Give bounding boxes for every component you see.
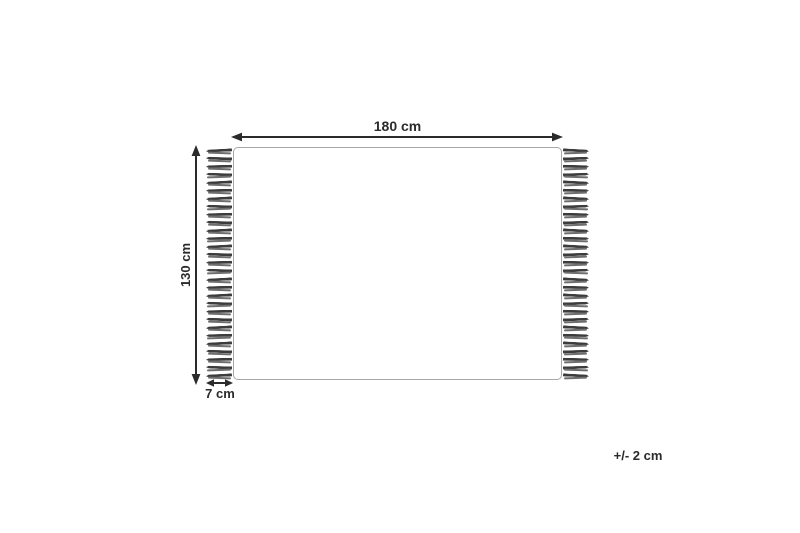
fringe-tassel [563, 237, 589, 242]
fringe-tassel [206, 173, 232, 178]
height-dimension-arrow [189, 145, 203, 385]
fringe-tassel [206, 149, 232, 154]
fringe-tassel [206, 278, 232, 283]
fringe-tassel [563, 350, 589, 355]
fringe-tassel [206, 366, 232, 371]
fringe-tassel [206, 358, 232, 363]
fringe-tassel [563, 358, 589, 363]
fringe-tassel [563, 229, 589, 234]
fringe-tassel [206, 165, 232, 170]
fringe-tassel [563, 197, 589, 202]
fringe-tassel [563, 165, 589, 170]
fringe-tassel [206, 350, 232, 355]
rug-outline [233, 147, 562, 380]
fringe-tassel [563, 294, 589, 299]
fringe-tassel [206, 294, 232, 299]
fringe-tassel [563, 334, 589, 339]
fringe-tassel [206, 237, 232, 242]
fringe-tassel [206, 302, 232, 307]
width-dimension-arrow [231, 130, 563, 144]
fringe-tassel [206, 286, 232, 291]
fringe-tassel [563, 310, 589, 315]
fringe-tassel [206, 157, 232, 162]
fringe-tassel [563, 245, 589, 250]
fringe-tassel [563, 318, 589, 323]
fringe-tassel [563, 366, 589, 371]
fringe-tassel [563, 189, 589, 194]
fringe-tassel [563, 149, 589, 154]
fringe-tassel [563, 374, 589, 379]
fringe-tassel [563, 269, 589, 274]
fringe-tassel [206, 197, 232, 202]
fringe-tassel [563, 205, 589, 210]
fringe-tassel [563, 326, 589, 331]
tolerance-note: +/- 2 cm [588, 448, 688, 463]
fringe-tassel [206, 253, 232, 258]
fringe-tassel [563, 278, 589, 283]
fringe-tassel [563, 173, 589, 178]
fringe-tassel [206, 342, 232, 347]
fringe-tassel [206, 181, 232, 186]
right-fringe [563, 149, 589, 379]
fringe-tassel [563, 286, 589, 291]
fringe-tassel [563, 342, 589, 347]
fringe-length-label: 7 cm [194, 387, 246, 401]
dimension-diagram: 180 cm 130 cm 7 cm +/- 2 cm [0, 0, 800, 533]
fringe-tassel [206, 310, 232, 315]
fringe-tassel [206, 334, 232, 339]
left-fringe [206, 149, 232, 379]
fringe-tassel [206, 318, 232, 323]
fringe-tassel [563, 261, 589, 266]
fringe-tassel [206, 269, 232, 274]
fringe-tassel [206, 189, 232, 194]
fringe-tassel [563, 253, 589, 258]
fringe-tassel [206, 326, 232, 331]
fringe-tassel [563, 302, 589, 307]
fringe-tassel [206, 205, 232, 210]
fringe-tassel [206, 213, 232, 218]
fringe-tassel [563, 213, 589, 218]
fringe-tassel [206, 245, 232, 250]
fringe-tassel [206, 221, 232, 226]
fringe-tassel [563, 157, 589, 162]
fringe-tassel [563, 221, 589, 226]
fringe-tassel [206, 229, 232, 234]
fringe-tassel [563, 181, 589, 186]
fringe-tassel [206, 261, 232, 266]
